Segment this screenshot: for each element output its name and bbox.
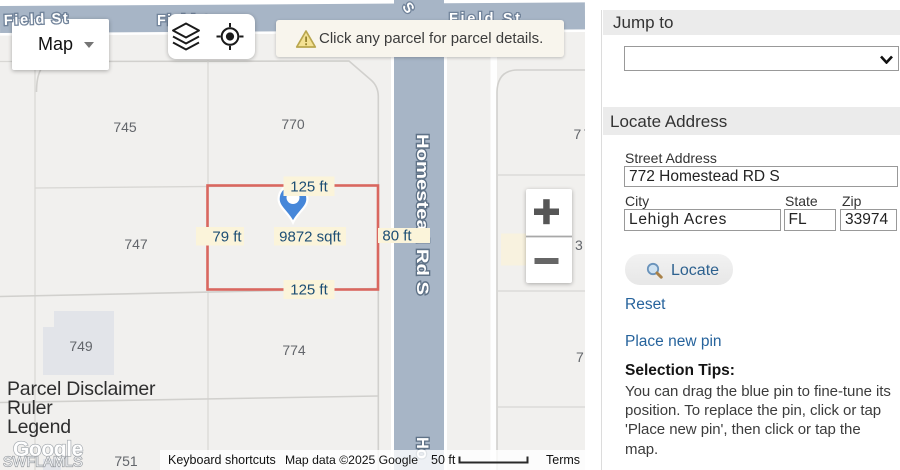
svg-text:79 ft: 79 ft xyxy=(212,229,242,246)
svg-text:50 ft: 50 ft xyxy=(431,453,456,467)
svg-text:80 ft: 80 ft xyxy=(382,228,412,245)
svg-text:745: 745 xyxy=(113,119,137,135)
svg-text:Map data ©2025 Google: Map data ©2025 Google xyxy=(285,453,418,467)
svg-text:Field St: Field St xyxy=(4,11,69,29)
svg-text:749: 749 xyxy=(69,338,93,354)
svg-text:Keyboard shortcuts: Keyboard shortcuts xyxy=(168,453,276,467)
svg-text:3: 3 xyxy=(575,237,583,253)
svg-text:751: 751 xyxy=(114,453,138,469)
svg-text:747: 747 xyxy=(124,236,148,252)
svg-text:774: 774 xyxy=(282,342,306,358)
svg-text:Homestead Rd S: Homestead Rd S xyxy=(413,134,431,295)
svg-text:125 ft: 125 ft xyxy=(290,282,328,299)
svg-text:9872 sqft: 9872 sqft xyxy=(279,229,342,246)
svg-text:SWFLAMLS: SWFLAMLS xyxy=(3,455,83,470)
svg-text:770: 770 xyxy=(281,116,305,132)
svg-text:7: 7 xyxy=(576,349,584,365)
svg-text:125 ft: 125 ft xyxy=(290,179,328,196)
svg-text:7: 7 xyxy=(574,126,582,142)
svg-text:Terms: Terms xyxy=(546,453,580,467)
